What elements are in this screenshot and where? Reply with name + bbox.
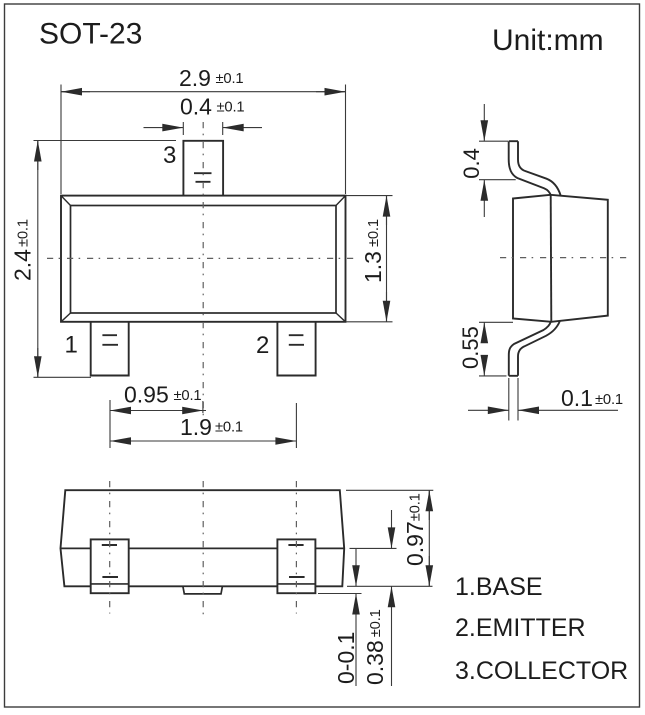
- svg-text:1.3±0.1: 1.3±0.1: [360, 219, 386, 283]
- svg-text:1.BASE: 1.BASE: [455, 573, 543, 601]
- svg-text:1: 1: [65, 332, 78, 359]
- svg-text:±0.1: ±0.1: [215, 420, 243, 436]
- svg-text:2.9: 2.9: [179, 65, 211, 91]
- svg-text:0.55: 0.55: [458, 326, 483, 369]
- svg-text:±0.1: ±0.1: [174, 388, 202, 404]
- svg-text:Unit:mm: Unit:mm: [492, 24, 604, 57]
- svg-text:0.95: 0.95: [124, 382, 169, 408]
- svg-text:2.EMITTER: 2.EMITTER: [455, 614, 586, 642]
- svg-text:±0.1: ±0.1: [216, 71, 244, 87]
- svg-text:0.1: 0.1: [561, 385, 593, 411]
- svg-text:0-0.1: 0-0.1: [333, 632, 359, 684]
- svg-text:±0.1: ±0.1: [217, 100, 245, 116]
- svg-text:3.COLLECTOR: 3.COLLECTOR: [455, 657, 628, 685]
- svg-text:0.38±0.1: 0.38±0.1: [362, 609, 388, 685]
- svg-text:2.4±0.1: 2.4±0.1: [10, 219, 36, 281]
- svg-text:1.9: 1.9: [180, 414, 212, 440]
- svg-text:±0.1: ±0.1: [595, 392, 623, 408]
- svg-text:0.4: 0.4: [180, 94, 212, 120]
- svg-text:2: 2: [256, 332, 269, 359]
- svg-text:SOT-23: SOT-23: [39, 18, 142, 51]
- svg-text:3: 3: [163, 142, 176, 169]
- svg-text:0.4: 0.4: [459, 148, 484, 179]
- svg-text:0.97±0.1: 0.97±0.1: [402, 493, 428, 566]
